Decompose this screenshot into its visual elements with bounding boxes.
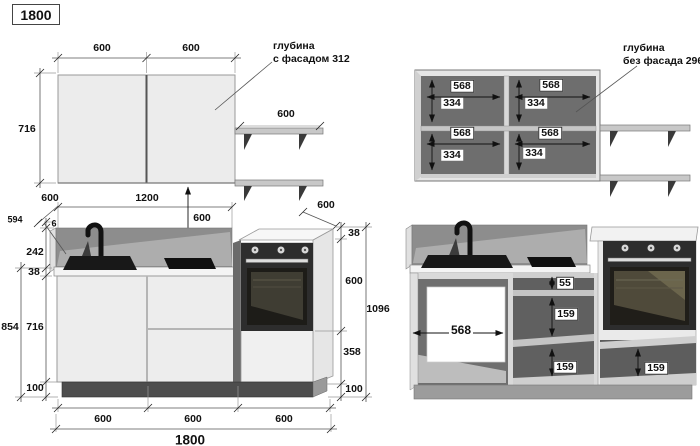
note-depth-with-facade: глубина с фасадом 312 [273,40,350,66]
dim-backsplash-height: 242 [26,247,44,258]
note-line1: глубина [273,40,350,53]
dim-panel-height: 594 [7,216,22,225]
note-line2: с фасадом 312 [273,53,350,66]
wall-cabinet-closed [58,75,235,183]
kitchen-spec-drawing: 1800 600 600 716 600 глубина с фасадом 3… [0,0,700,446]
dim-oblique-right: 600 [317,200,335,211]
oven-tower-left-view [233,229,333,388]
dim-open-tr-height: 334 [525,98,547,109]
dim-total-width: 1800 [175,433,205,446]
sink-left-view [63,256,137,270]
dim-tower-plinth-height: 100 [345,384,363,395]
dim-tower-drawer-height: 358 [343,347,361,358]
dim-section3: 600 [275,414,293,425]
dim-middle-drawer-inner: 159 [554,308,578,321]
dim-countertop-thickness: 38 [28,267,40,278]
dim-open-bl-width: 568 [450,127,474,140]
dim-open-br-height: 334 [523,148,545,159]
dim-body-height: 716 [26,322,44,333]
dim-wall-height: 716 [18,124,36,135]
dim-tower-oven-height: 600 [345,276,363,287]
dim-tower-total-height: 1096 [366,304,389,315]
dim-gap-height: 600 [193,213,211,224]
dim-open-bl-height: 334 [441,150,463,161]
wall-cabinet-open [415,70,600,181]
dim-bottom-drawer-inner: 159 [553,361,577,374]
dim-oblique-left: 600 [41,193,59,204]
wall-shelves-left-view [235,128,323,201]
dim-top-drawer-inner: 55 [556,277,574,290]
dim-wall-width-left: 600 [93,43,111,54]
drawing-layer [0,0,700,446]
dim-shelf-width: 600 [277,109,295,120]
dim-tower-top-thickness: 38 [348,228,360,239]
dim-sink-inner-width: 568 [449,324,473,336]
dim-sink-run: 1200 [135,193,158,204]
dim-section1: 600 [94,414,112,425]
dim-body-plus-plinth: 854 [1,322,19,333]
dim-open-br-width: 568 [538,127,562,140]
plinth-right-view [414,385,692,399]
note-depth-without-facade: глубина без фасада 296 [623,42,700,68]
dim-wall-width-right: 600 [182,43,200,54]
cooktop-right-view [527,257,576,267]
dim-panel-thickness: 6 [51,220,56,229]
base-cabinet-fronts [57,276,237,382]
dim-open-tr-width: 568 [539,79,563,92]
dim-open-tl-width: 568 [450,80,474,93]
dim-tower-drawer-inner: 159 [644,362,668,375]
dim-open-tl-height: 334 [441,98,463,109]
title-box: 1800 [12,4,60,25]
note-line2: без фасада 296 [623,55,700,68]
cooktop-left-view [164,258,216,269]
note-line1: глубина [623,42,700,55]
dim-plinth-height: 100 [26,383,44,394]
dim-section2: 600 [184,414,202,425]
sink-right-view [421,255,513,268]
